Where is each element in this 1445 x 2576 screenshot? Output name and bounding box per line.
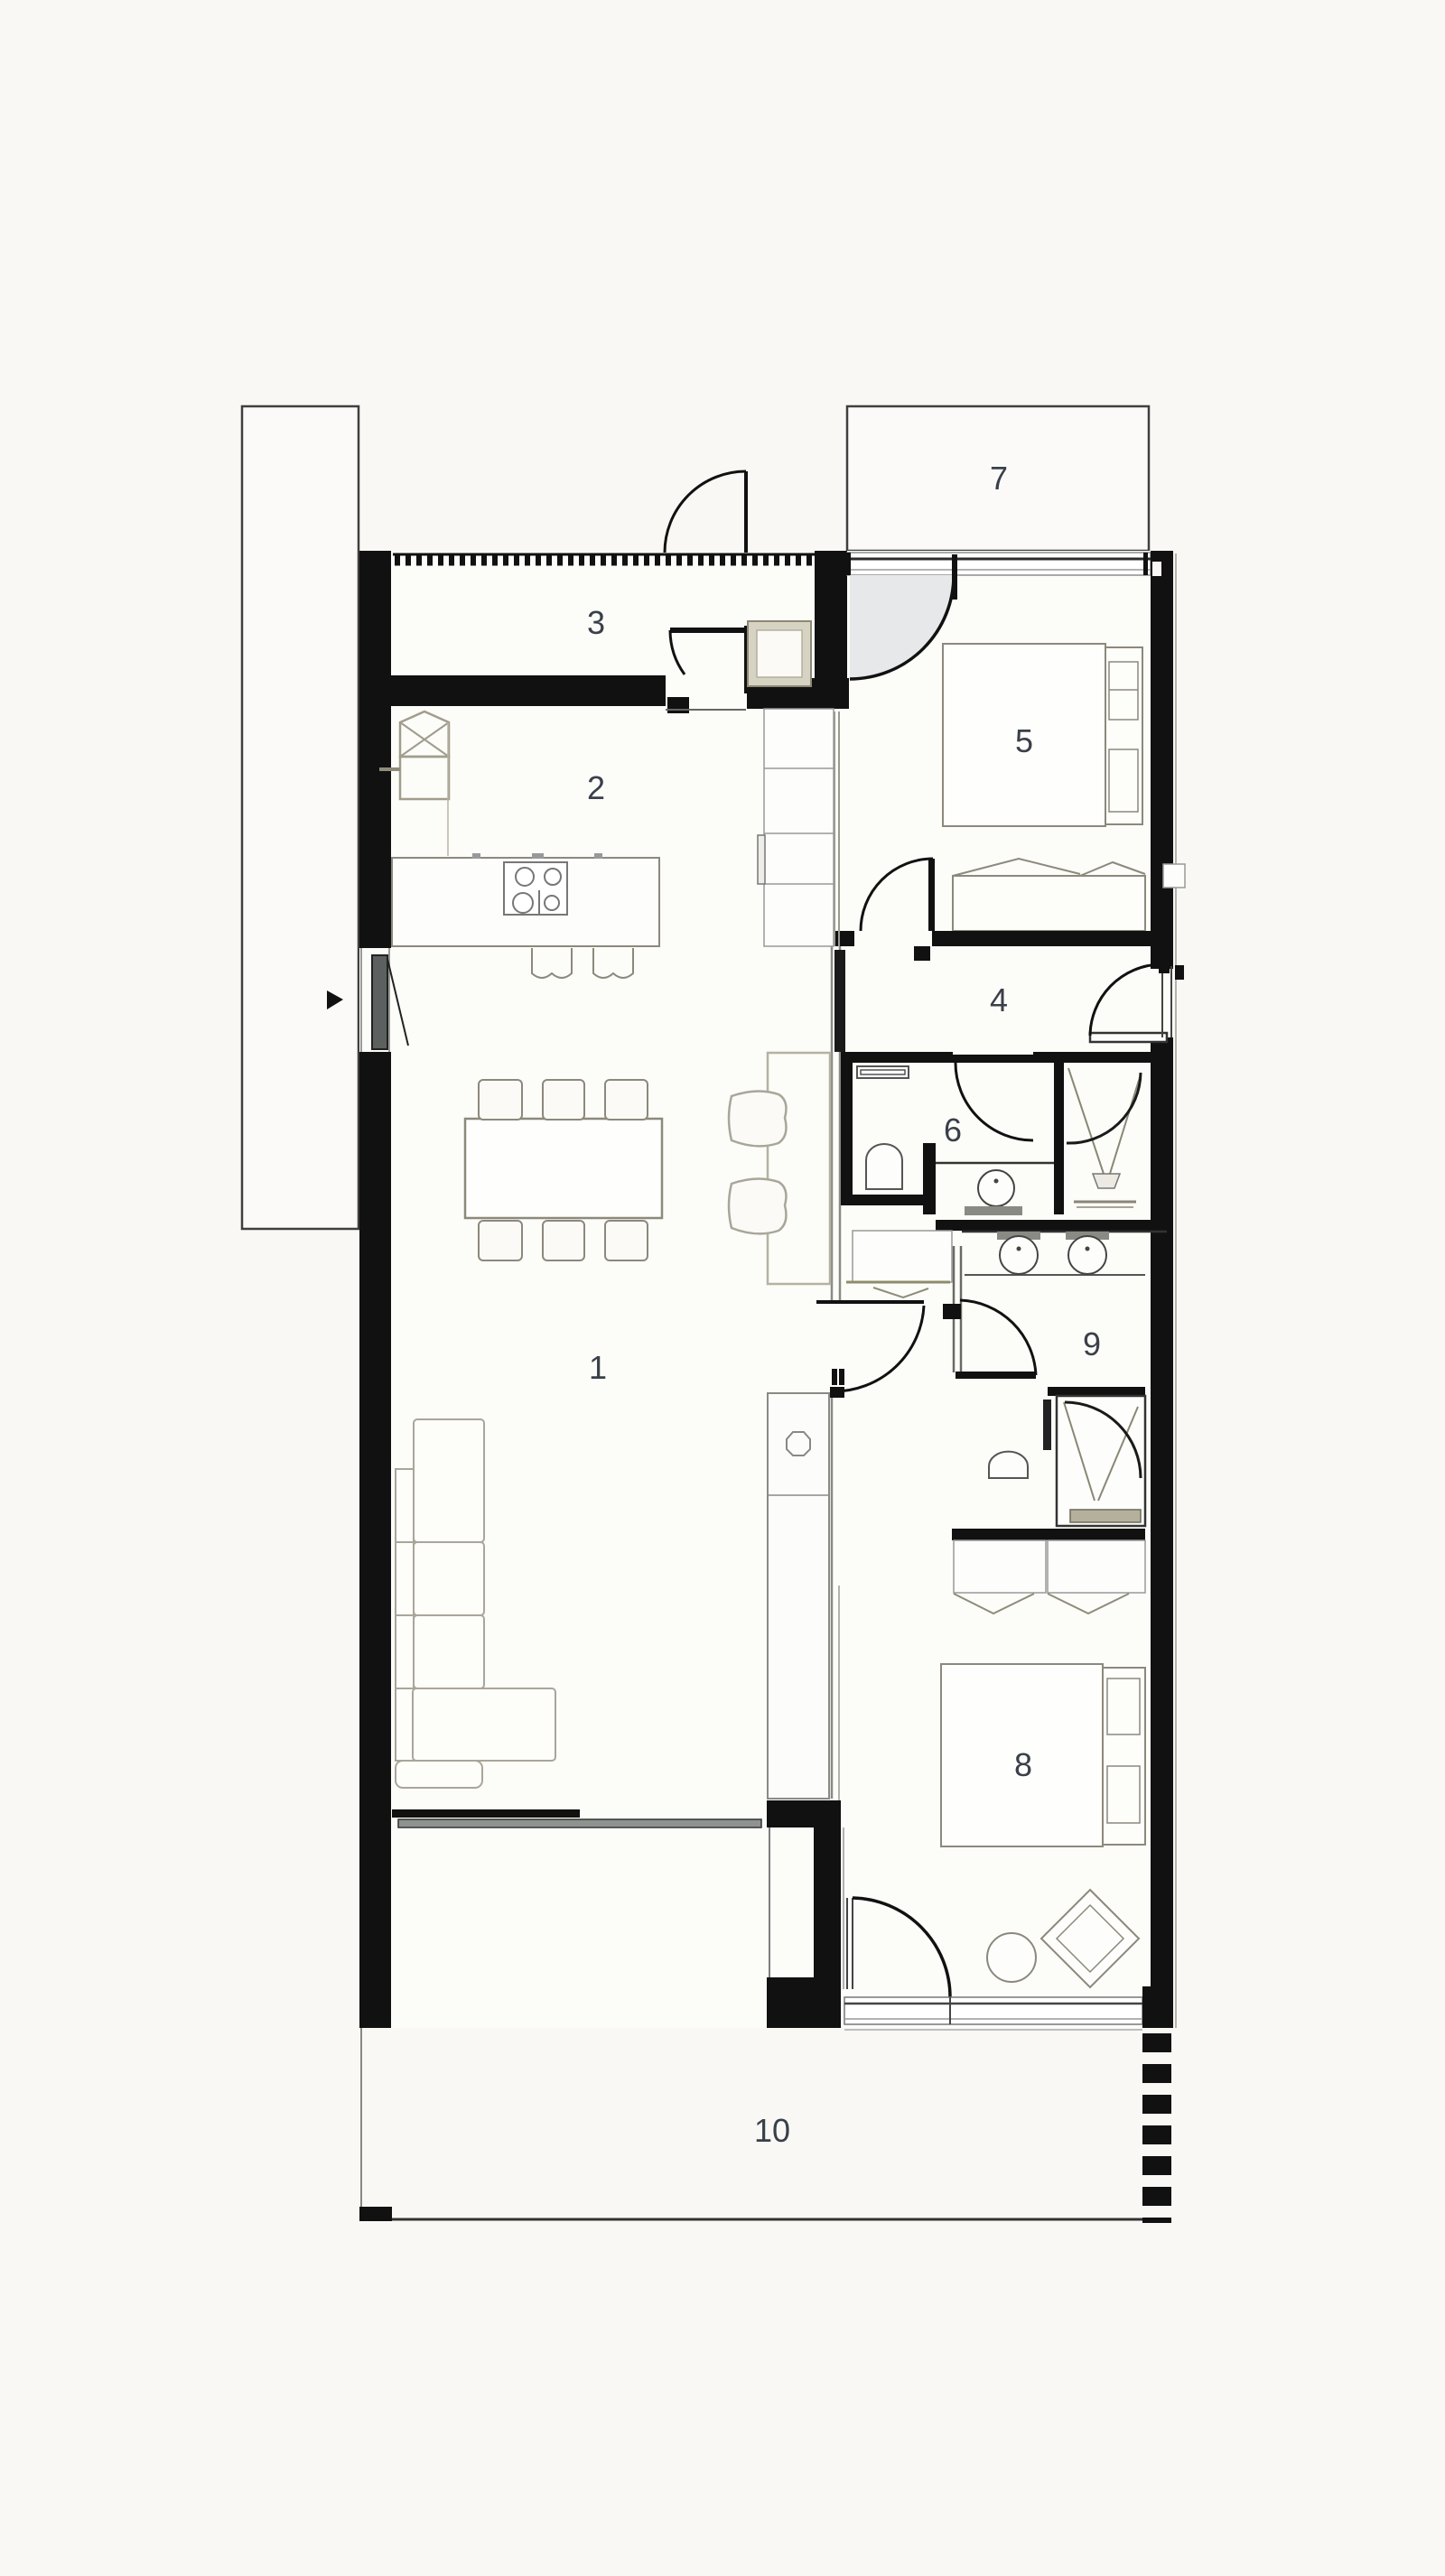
svg-text:6: 6 — [944, 1111, 962, 1149]
svg-text:8: 8 — [1014, 1746, 1032, 1783]
svg-text:3: 3 — [587, 604, 605, 641]
svg-text:9: 9 — [1083, 1325, 1101, 1362]
svg-text:5: 5 — [1015, 722, 1033, 759]
svg-text:10: 10 — [754, 2112, 790, 2149]
svg-text:7: 7 — [990, 460, 1008, 497]
svg-text:2: 2 — [587, 769, 605, 806]
svg-text:4: 4 — [990, 981, 1008, 1018]
svg-text:1: 1 — [589, 1349, 607, 1386]
